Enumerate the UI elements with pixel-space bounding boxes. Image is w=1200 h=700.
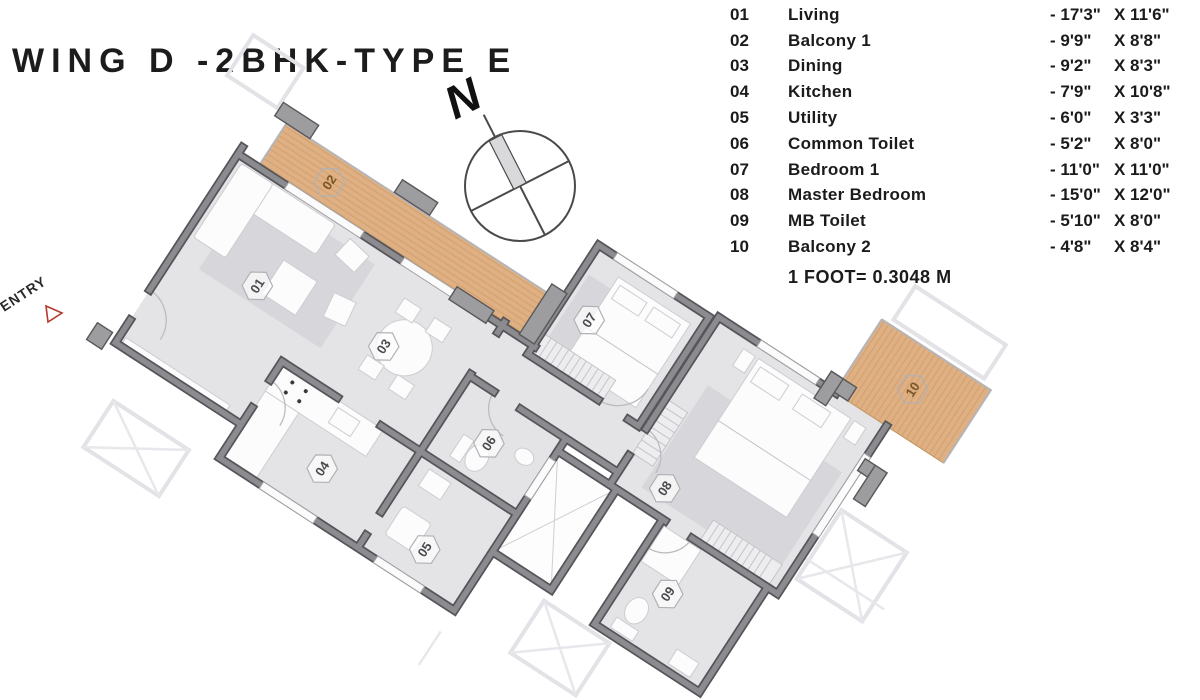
north-arrow xyxy=(489,135,526,189)
north-compass: N xyxy=(435,67,594,260)
floor-plan-page: WING D -2BHK-TYPE E 01 Living - 17'3" X … xyxy=(0,0,1200,700)
entry-arrow-icon xyxy=(46,306,62,322)
north-label: N xyxy=(436,67,490,129)
apartment-plan: 01 02 03 04 05 06 xyxy=(15,0,1041,700)
entry-marker: ENTRY xyxy=(0,273,62,322)
floor-plan-drawing: 01 02 03 04 05 06 xyxy=(0,0,1200,700)
entry-label: ENTRY xyxy=(0,273,49,315)
